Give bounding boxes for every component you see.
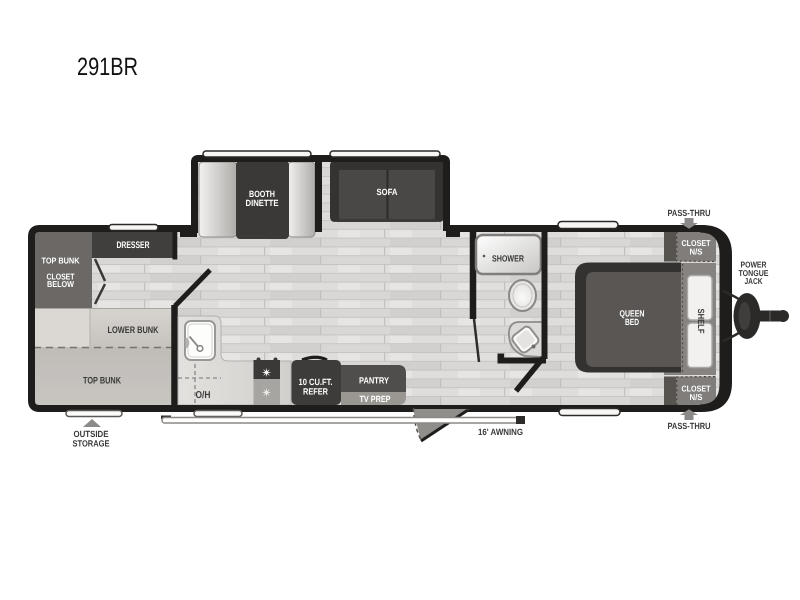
svg-text:DINETTE: DINETTE (246, 198, 279, 208)
svg-text:PASS-THRU: PASS-THRU (668, 208, 711, 218)
svg-text:TOP BUNK: TOP BUNK (83, 376, 121, 387)
svg-text:PASS-THRU: PASS-THRU (668, 421, 711, 431)
svg-text:SHOWER: SHOWER (492, 253, 524, 263)
svg-text:REFER: REFER (303, 386, 328, 396)
svg-text:LOWER BUNK: LOWER BUNK (108, 325, 159, 336)
svg-text:16' AWNING: 16' AWNING (478, 427, 523, 437)
svg-text:OUTSIDE: OUTSIDE (74, 429, 109, 439)
svg-text:PANTRY: PANTRY (359, 376, 389, 386)
svg-text:JACK: JACK (745, 276, 764, 286)
svg-text:TOP BUNK: TOP BUNK (42, 255, 81, 265)
svg-text:N/S: N/S (690, 246, 703, 256)
svg-text:N/S: N/S (690, 392, 703, 402)
svg-text:291BR: 291BR (77, 53, 138, 81)
svg-text:DRESSER: DRESSER (117, 240, 150, 251)
svg-text:10 CU.FT.: 10 CU.FT. (299, 377, 333, 387)
svg-text:BED: BED (625, 317, 639, 327)
svg-text:STORAGE: STORAGE (73, 439, 110, 449)
svg-text:BELOW: BELOW (47, 279, 75, 289)
svg-text:TV PREP: TV PREP (360, 394, 391, 404)
svg-text:SOFA: SOFA (377, 187, 398, 197)
svg-text:SHELF: SHELF (696, 309, 706, 334)
svg-text:O/H: O/H (196, 390, 211, 401)
